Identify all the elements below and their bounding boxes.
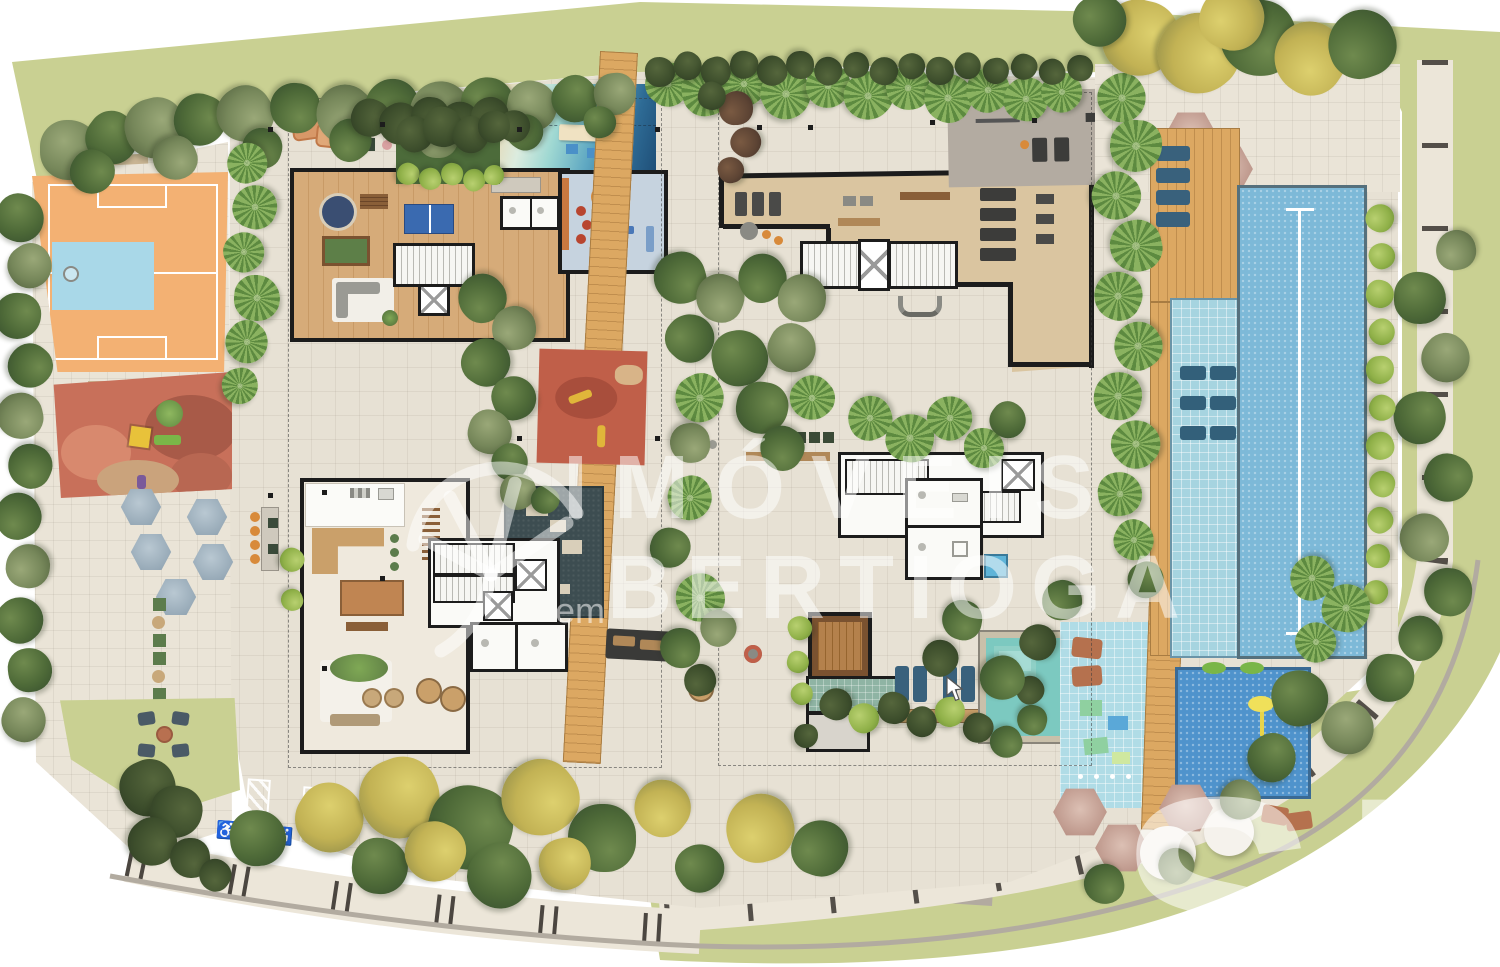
water-jet-icon: [1094, 774, 1099, 779]
goal-box-top: [97, 184, 168, 208]
in-water-lounger-icon: [1180, 366, 1206, 380]
sun-lounger-icon: [1156, 190, 1190, 205]
water-jet-icon: [1110, 774, 1115, 779]
in-water-lounger-icon: [1210, 426, 1236, 440]
round-table-icon: [690, 678, 712, 700]
in-water-lounger-icon: [1210, 366, 1236, 380]
bar-stool-icon: [250, 526, 260, 536]
wheelchair-icon: ♿: [271, 826, 294, 847]
garden-chair-icon: [171, 711, 190, 726]
leaf-seat-icon: [1202, 662, 1226, 674]
lane-line: [1298, 210, 1301, 634]
in-water-lounger-icon: [1180, 426, 1206, 440]
grill-icon: [268, 544, 278, 554]
parking-hatch-strip: [242, 778, 271, 859]
playground: [50, 372, 232, 498]
goal-box-bottom: [97, 336, 168, 360]
watermark-line2: BERTIOGA: [607, 543, 1194, 633]
in-water-lounger-icon: [1180, 396, 1206, 410]
watermark-line1: IMÓVEIS: [563, 443, 1120, 533]
palm-shower-toy-icon: [1248, 696, 1274, 712]
table-icon: [152, 670, 165, 683]
grill-icon: [268, 518, 278, 528]
bar-stool-icon: [250, 512, 260, 522]
in-water-lounger-icon: [1210, 396, 1236, 410]
center-watermark: IMÓVEIS em BERTIOGA: [395, 425, 1155, 665]
lane-t-mark: [1286, 632, 1314, 635]
slide-icon: [154, 435, 181, 445]
splash-mat-icon: [1108, 716, 1128, 730]
table-icon: [152, 616, 165, 629]
sun-lounger-icon: [1156, 212, 1190, 227]
sun-lounger-icon: [1156, 168, 1190, 183]
stool-icon: [153, 634, 166, 647]
multi-sport-court: [32, 172, 228, 372]
mouse-cursor: [946, 676, 968, 702]
wheelchair-icon: ♿: [216, 820, 239, 841]
parking-hatch-strip: [298, 786, 326, 859]
bar-stool-icon: [250, 554, 260, 564]
bar-stool-icon: [250, 540, 260, 550]
stool-icon: [153, 598, 166, 611]
accessible-parking: ♿ ♿: [202, 774, 338, 869]
play-structure-icon: [129, 426, 152, 449]
garden-chair-icon: [171, 743, 189, 758]
garden-chair-icon: [137, 743, 155, 758]
watermark-line2-prefix: em: [555, 593, 605, 629]
garden-chair-icon: [137, 711, 156, 726]
spring-toy-icon: [137, 475, 146, 489]
fire-table-icon: [158, 728, 171, 741]
site-plan-canvas: ♿ ♿: [0, 0, 1500, 967]
sun-lounger-icon: [1156, 146, 1190, 161]
lap-pool: [1240, 188, 1364, 656]
palm-tree-icon: [156, 400, 183, 427]
water-jet-icon: [1078, 774, 1083, 779]
stool-icon: [153, 652, 166, 665]
leaf-seat-icon: [1240, 662, 1264, 674]
lane-t-mark: [1286, 208, 1314, 211]
corner-watermark: SIV: [1118, 752, 1500, 967]
